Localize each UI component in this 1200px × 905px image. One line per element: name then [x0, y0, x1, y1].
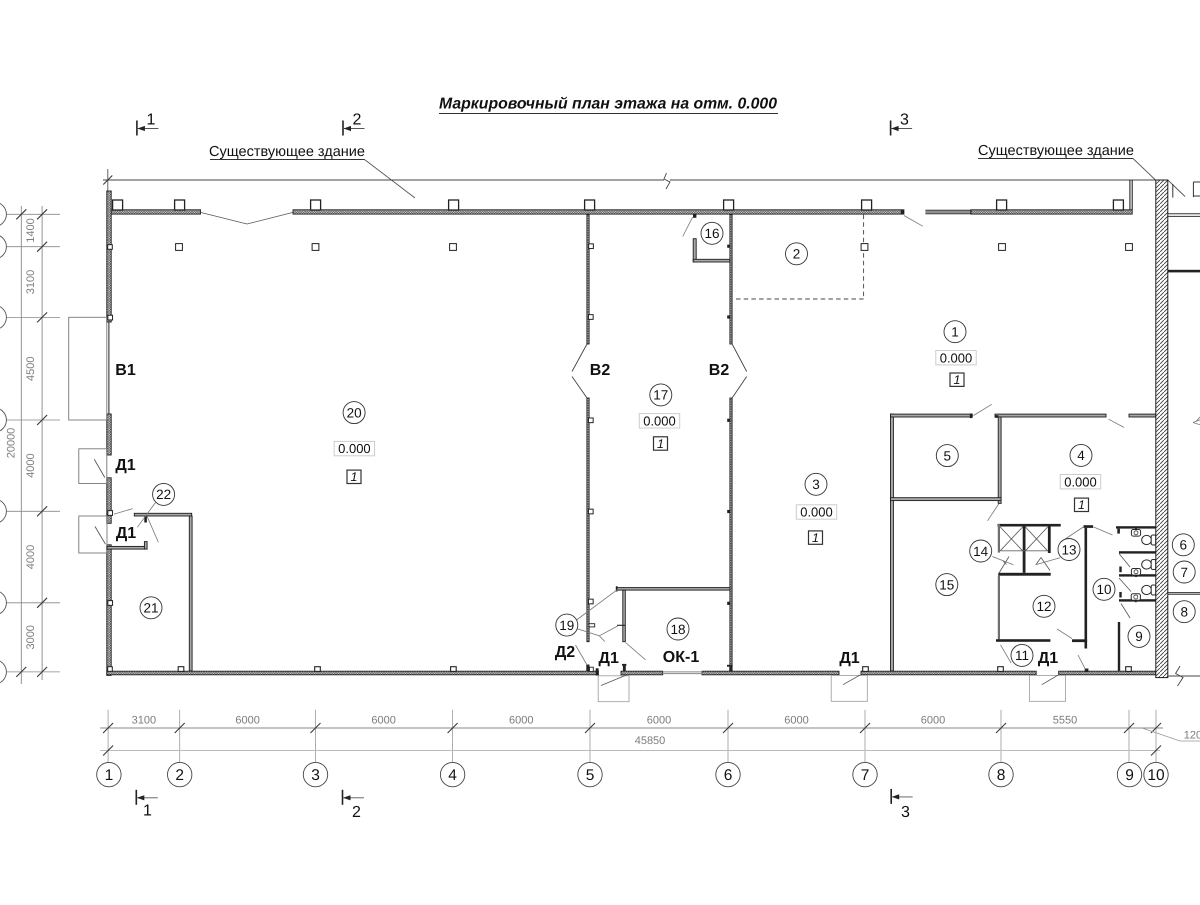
- svg-text:6000: 6000: [647, 715, 671, 727]
- svg-text:45850: 45850: [635, 735, 666, 747]
- svg-text:Маркировочный план этажа на от: Маркировочный план этажа на отм. 0.000: [439, 96, 777, 113]
- svg-text:Д2: Д2: [555, 644, 575, 661]
- svg-text:0.000: 0.000: [338, 441, 371, 456]
- svg-text:4: 4: [448, 767, 457, 784]
- svg-text:Д1: Д1: [1038, 650, 1058, 667]
- svg-text:22: 22: [156, 487, 171, 502]
- svg-text:6000: 6000: [921, 715, 945, 727]
- svg-text:4000: 4000: [25, 453, 37, 477]
- svg-text:В2: В2: [590, 362, 611, 379]
- svg-text:1: 1: [147, 112, 156, 129]
- svg-text:1: 1: [143, 803, 152, 820]
- svg-text:5550: 5550: [1053, 715, 1077, 727]
- svg-text:11: 11: [1015, 648, 1029, 663]
- svg-text:9: 9: [1125, 767, 1134, 784]
- svg-text:3: 3: [900, 112, 909, 129]
- svg-text:0.000: 0.000: [940, 350, 973, 365]
- svg-text:9: 9: [1135, 629, 1143, 644]
- svg-text:В2: В2: [709, 362, 730, 379]
- svg-text:1400: 1400: [25, 218, 37, 242]
- svg-text:2: 2: [793, 247, 801, 262]
- svg-text:0.000: 0.000: [1064, 474, 1097, 489]
- svg-text:1: 1: [1078, 498, 1085, 512]
- svg-text:4000: 4000: [25, 545, 37, 569]
- svg-text:14: 14: [973, 544, 989, 559]
- svg-text:18: 18: [670, 622, 685, 637]
- svg-text:ОК-1: ОК-1: [663, 649, 700, 666]
- svg-text:3: 3: [812, 477, 820, 492]
- svg-text:Д1: Д1: [599, 650, 619, 667]
- svg-text:7: 7: [1180, 565, 1188, 580]
- svg-text:20: 20: [347, 405, 362, 420]
- svg-text:2: 2: [175, 767, 184, 784]
- svg-text:5: 5: [586, 767, 595, 784]
- svg-text:1: 1: [105, 767, 114, 784]
- svg-text:6000: 6000: [371, 715, 395, 727]
- svg-text:Д1: Д1: [116, 525, 136, 542]
- svg-text:В1: В1: [115, 362, 136, 379]
- svg-text:10: 10: [1147, 767, 1165, 784]
- svg-text:Существующее здание: Существующее здание: [978, 143, 1134, 159]
- svg-text:6: 6: [1180, 538, 1188, 553]
- svg-text:12: 12: [1036, 599, 1051, 614]
- svg-text:13: 13: [1061, 542, 1076, 557]
- svg-text:8: 8: [997, 767, 1006, 784]
- svg-text:Д1: Д1: [839, 650, 859, 667]
- svg-text:7: 7: [861, 767, 870, 784]
- svg-text:4500: 4500: [25, 356, 37, 380]
- svg-text:2: 2: [353, 112, 362, 129]
- svg-text:3000: 3000: [25, 625, 37, 649]
- svg-text:0.000: 0.000: [643, 413, 676, 428]
- svg-text:1200: 1200: [1184, 729, 1200, 741]
- svg-text:2: 2: [352, 804, 361, 821]
- svg-text:1: 1: [812, 531, 819, 545]
- svg-text:3: 3: [901, 804, 910, 821]
- svg-text:3: 3: [311, 767, 320, 784]
- svg-text:10: 10: [1096, 582, 1111, 597]
- svg-text:21: 21: [143, 601, 158, 616]
- svg-text:1: 1: [351, 470, 358, 484]
- svg-text:1: 1: [657, 437, 664, 451]
- svg-text:8: 8: [1180, 605, 1188, 620]
- svg-text:6000: 6000: [509, 715, 533, 727]
- svg-text:3100: 3100: [132, 715, 156, 727]
- svg-text:1: 1: [954, 373, 961, 387]
- svg-text:5: 5: [944, 448, 952, 463]
- svg-text:16: 16: [704, 226, 719, 241]
- svg-text:20000: 20000: [6, 428, 18, 459]
- svg-text:6000: 6000: [235, 715, 259, 727]
- svg-text:19: 19: [559, 618, 574, 633]
- svg-text:6: 6: [724, 767, 733, 784]
- svg-text:0.000: 0.000: [800, 505, 833, 520]
- svg-text:3100: 3100: [25, 270, 37, 294]
- svg-text:Д1: Д1: [115, 457, 135, 474]
- svg-text:Существующее здание: Существующее здание: [209, 144, 365, 160]
- svg-text:6000: 6000: [784, 715, 808, 727]
- svg-text:15: 15: [939, 577, 954, 592]
- svg-text:17: 17: [653, 388, 668, 403]
- svg-text:1: 1: [951, 325, 959, 340]
- svg-text:4: 4: [1077, 448, 1085, 463]
